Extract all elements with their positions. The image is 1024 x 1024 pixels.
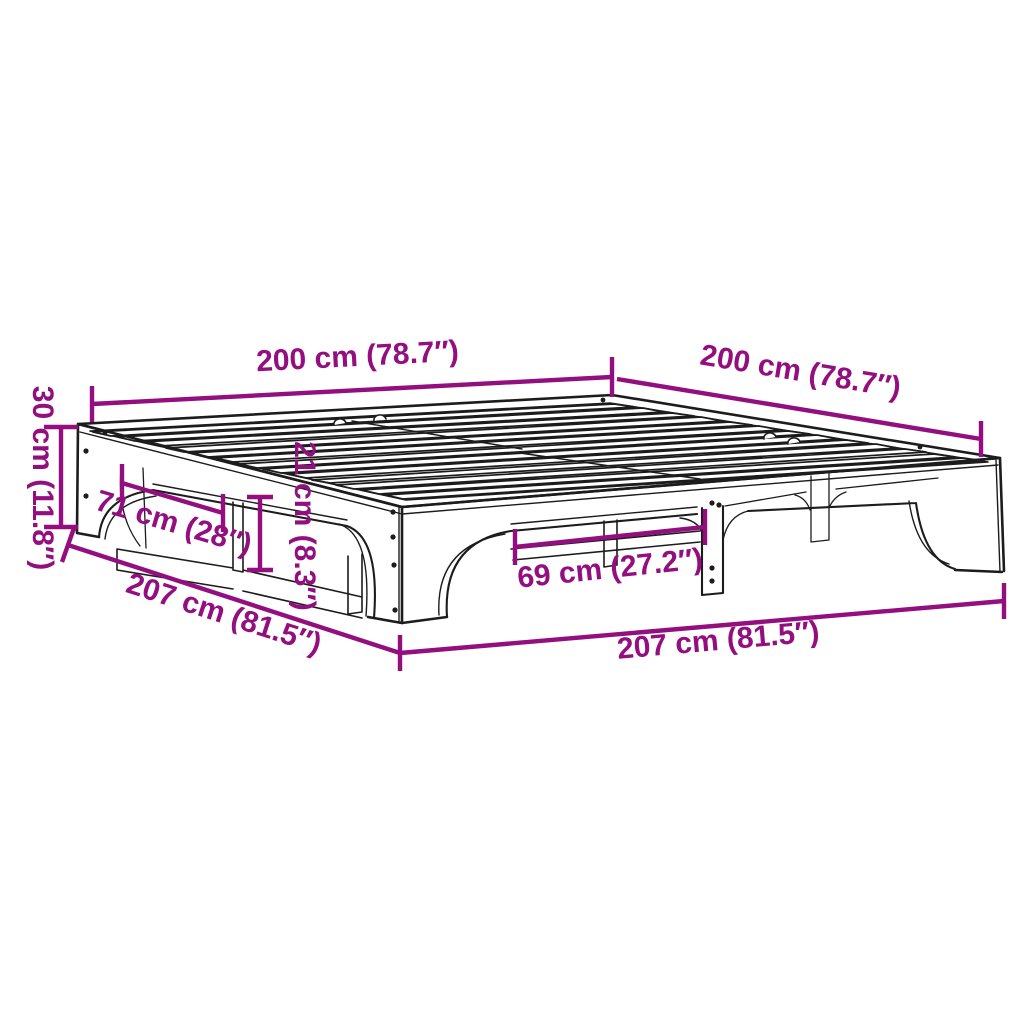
diagram-canvas: 200 cm (78.7″) 200 cm (78.7″) 30 cm (11.… [0,0,1024,1024]
dim-label-top-right-depth: 200 cm (78.7″) [698,339,903,405]
dimension-annotations: 200 cm (78.7″) 200 cm (78.7″) 30 cm (11.… [26,335,1004,671]
dim-label-top-left-width: 200 cm (78.7″) [255,335,459,379]
dim-label-bottom-right-length: 207 cm (81.5″) [616,615,821,666]
dim-label-under-clearance: 21 cm (8.3″) [288,441,321,610]
bed-frame-dimension-diagram: 200 cm (78.7″) 200 cm (78.7″) 30 cm (11.… [0,0,1024,1024]
dim-label-left-height: 30 cm (11.8″) [26,386,59,570]
dim-left-leg-spacing: 71 cm (28″) [92,464,256,562]
